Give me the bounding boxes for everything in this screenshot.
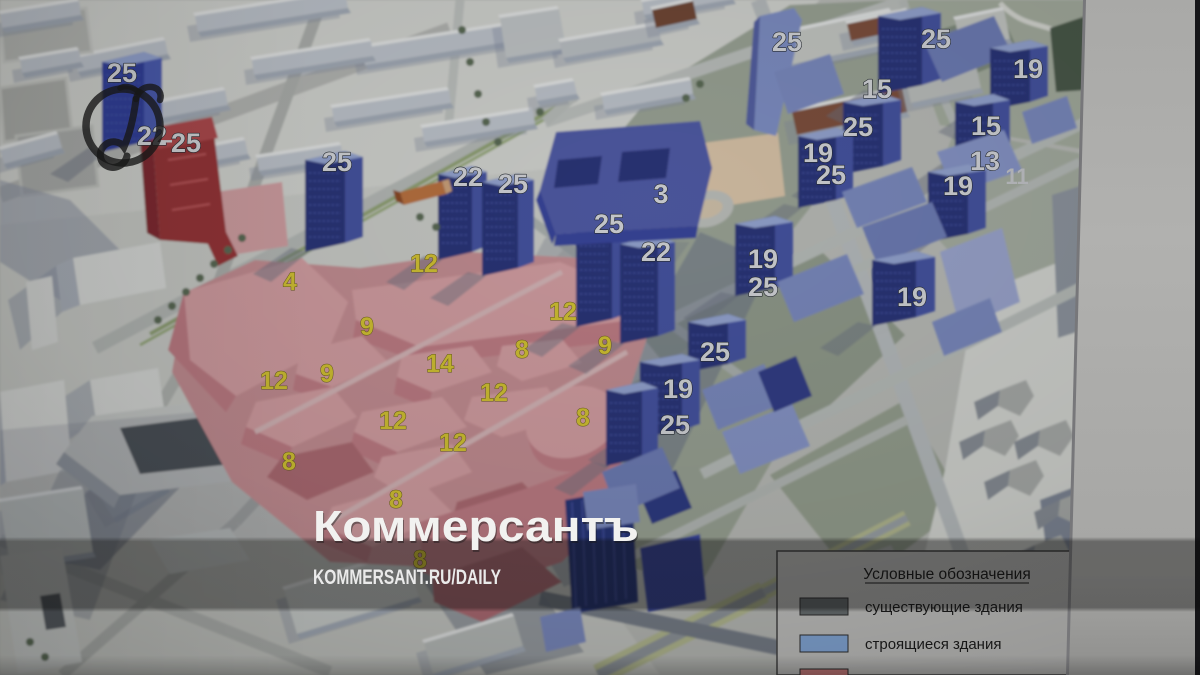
svg-text:KOMMERSANT.RU/DAILY: KOMMERSANT.RU/DAILY <box>313 565 501 589</box>
svg-text:Коммерсантъ: Коммерсантъ <box>313 502 639 551</box>
